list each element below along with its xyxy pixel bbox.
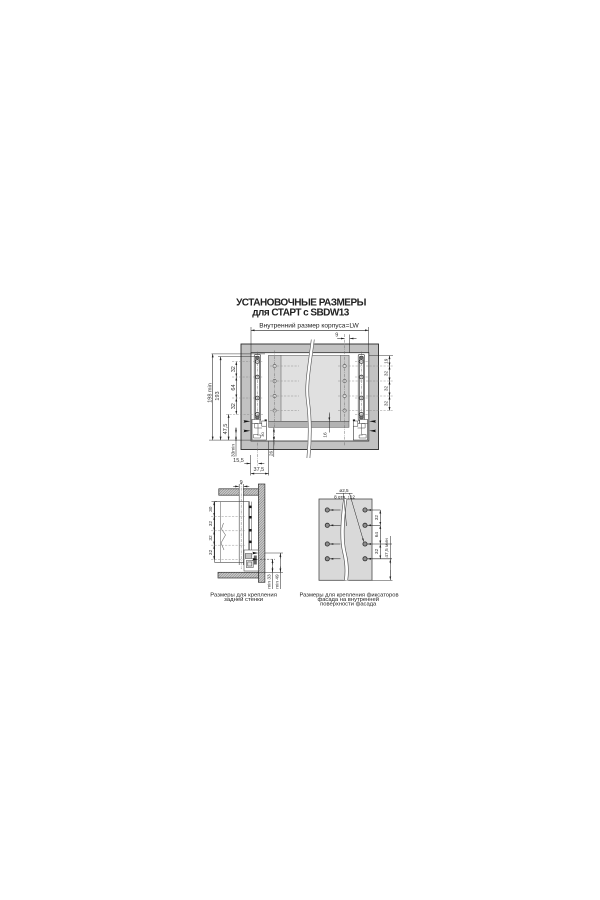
- svg-text:19: 19: [383, 358, 389, 364]
- svg-text:33min: 33min: [231, 444, 237, 457]
- svg-text:32: 32: [231, 366, 237, 372]
- svg-text:47,5: 47,5: [223, 424, 229, 435]
- svg-text:30: 30: [260, 432, 265, 437]
- svg-text:ø2,5: ø2,5: [339, 488, 349, 493]
- svg-text:15,5: 15,5: [233, 458, 244, 464]
- svg-text:26: 26: [268, 451, 274, 457]
- svg-text:для СТАРТ с SBDW13: для СТАРТ с SBDW13: [252, 308, 350, 319]
- svg-text:32: 32: [383, 401, 389, 407]
- svg-text:193: 193: [215, 391, 221, 400]
- svg-text:16: 16: [322, 432, 328, 438]
- svg-text:64: 64: [231, 384, 237, 390]
- svg-text:9: 9: [240, 480, 243, 486]
- svg-text:30: 30: [208, 506, 214, 512]
- svg-text:47,5 мин: 47,5 мин: [384, 538, 390, 558]
- svg-text:37,5: 37,5: [254, 467, 265, 473]
- svg-text:9: 9: [335, 333, 338, 339]
- svg-text:min 49: min 49: [275, 574, 281, 589]
- svg-text:32: 32: [374, 515, 380, 521]
- svg-text:198 min: 198 min: [207, 383, 213, 403]
- svg-text:32: 32: [383, 386, 389, 392]
- svg-text:8 отв. ↕12: 8 отв. ↕12: [334, 495, 355, 500]
- svg-text:Внутренний размер корпуса=LW: Внутренний размер корпуса=LW: [259, 321, 359, 329]
- svg-text:32: 32: [231, 403, 237, 409]
- svg-text:поверхности фасада: поверхности фасада: [320, 602, 377, 608]
- svg-text:32: 32: [208, 549, 214, 555]
- svg-text:64: 64: [374, 532, 380, 538]
- svg-text:задней стенки: задней стенки: [224, 596, 263, 603]
- svg-text:min 33: min 33: [267, 574, 273, 589]
- svg-text:32: 32: [383, 371, 389, 377]
- svg-text:32: 32: [374, 548, 380, 554]
- svg-text:32: 32: [208, 521, 214, 527]
- svg-text:32: 32: [208, 535, 214, 541]
